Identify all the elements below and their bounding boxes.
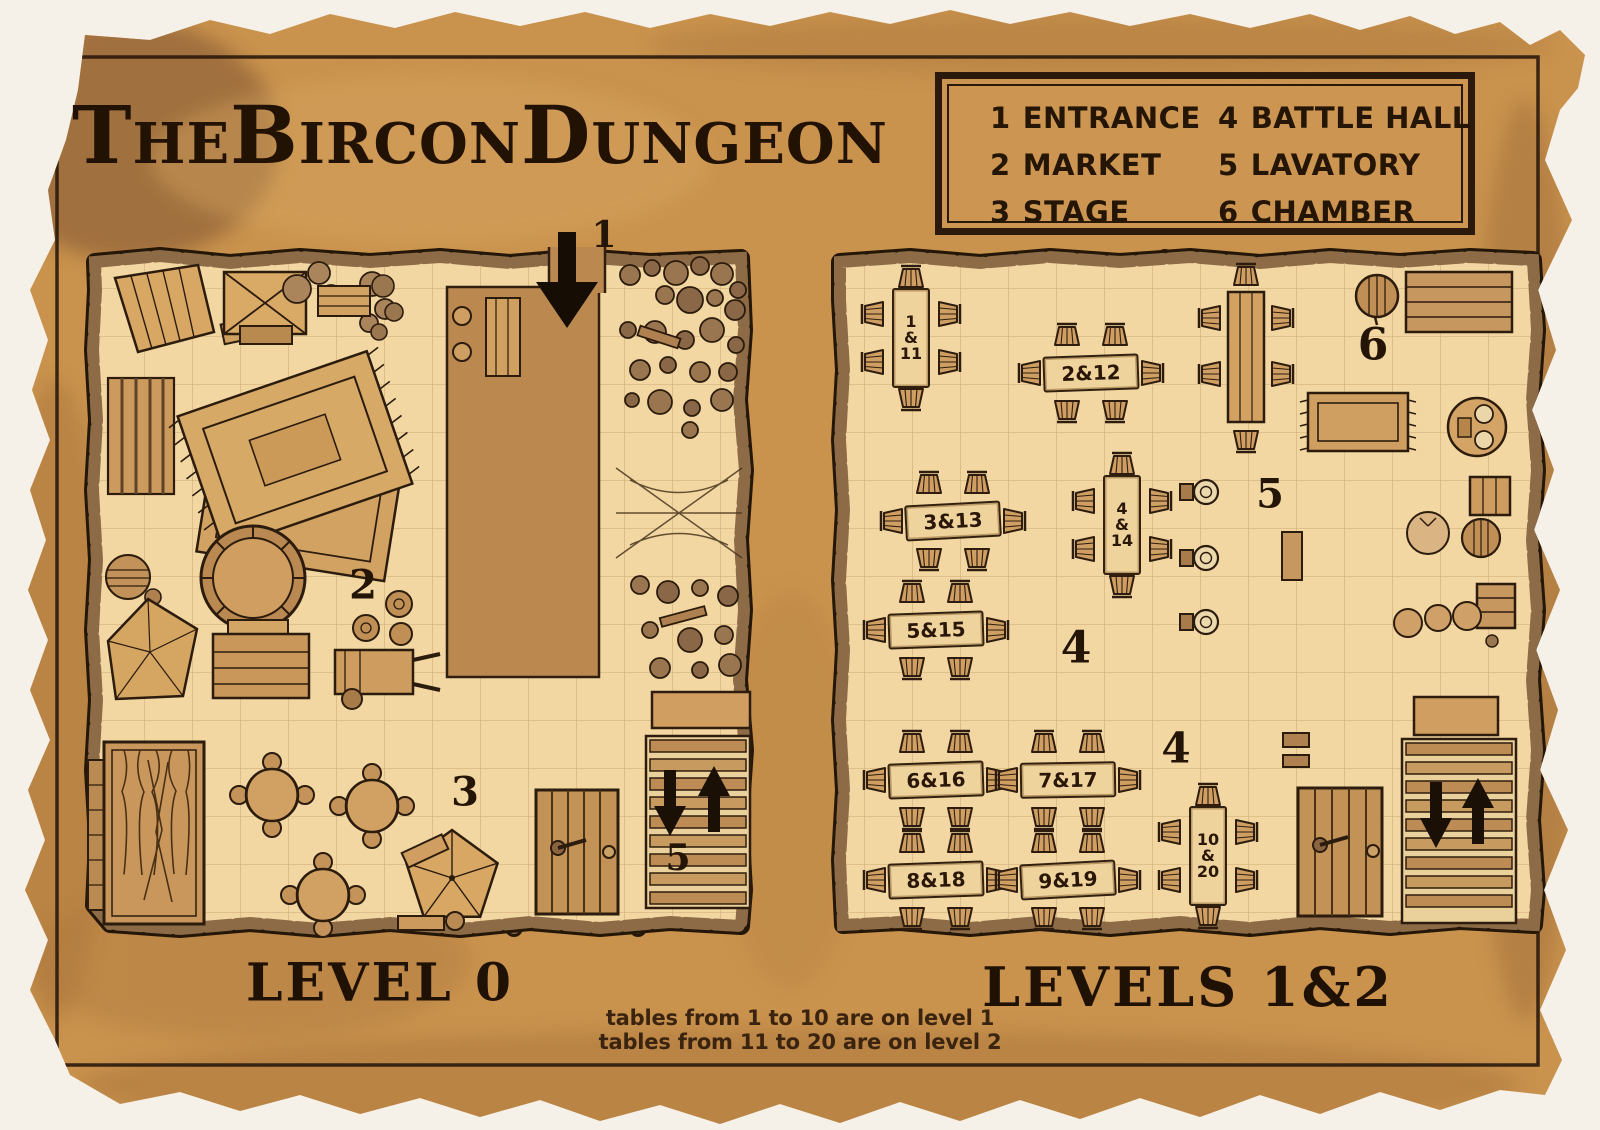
pot <box>446 912 464 930</box>
table-9-19: 9&19 <box>1019 860 1117 901</box>
table-8-18: 8&18 <box>887 860 984 899</box>
marker-market: 2 <box>349 562 377 609</box>
table-2-12: 2&12 <box>1042 353 1139 392</box>
table-5-15: 5&15 <box>887 610 984 649</box>
legend-item-stage: 3STAGE <box>990 195 1130 229</box>
market-bench <box>318 286 370 316</box>
stool <box>453 307 471 325</box>
table-4-14: 4 & 14 <box>1103 475 1141 575</box>
chamber-round-table <box>1448 398 1506 456</box>
bench-table <box>486 298 520 376</box>
lavatory-bench <box>1282 532 1302 580</box>
stairs-levels12 <box>1402 697 1516 923</box>
legend-item-lavatory: 5LAVATORY <box>1218 148 1421 182</box>
table-level-notes: tables from 1 to 10 are on level 1 table… <box>599 1006 1002 1054</box>
legend: 1ENTRANCE 2MARKET 3STAGE 4BATTLE HALL 5L… <box>935 72 1475 235</box>
marker-entrance: 1 <box>591 214 616 256</box>
marker-lavatory: 5 <box>1256 471 1284 518</box>
marker-stairs-level0: 5 <box>665 837 690 879</box>
note-line-2: tables from 11 to 20 are on level 2 <box>599 1030 1002 1054</box>
door-handle-icon <box>1367 845 1379 857</box>
note-line-1: tables from 1 to 10 are on level 1 <box>599 1006 1002 1030</box>
door-handle-icon <box>603 846 615 858</box>
stool <box>453 343 471 361</box>
table-1-11: 1 & 11 <box>892 288 930 388</box>
striped-rug <box>108 378 174 494</box>
wooden-door <box>536 790 618 914</box>
table-6-16: 6&16 <box>887 760 984 799</box>
level0-map <box>88 232 750 937</box>
stairs-level0 <box>646 692 750 908</box>
marker-chamber: 6 <box>1358 320 1389 371</box>
table-10-20: 10 & 20 <box>1189 806 1227 906</box>
legend-item-market: 2MARKET <box>990 148 1161 182</box>
levels12-caption: LEVELS 1&2 <box>982 955 1394 1019</box>
dungeon-map-sheet: TheBirconDungeon 1ENTRANCE 2MARKET 3STAG… <box>0 0 1600 1130</box>
chamber-rug <box>1300 393 1416 451</box>
page-title: TheBirconDungeon <box>72 88 888 182</box>
stage <box>88 742 204 924</box>
crate <box>398 916 444 930</box>
chamber-bed <box>1406 272 1512 332</box>
legend-item-battle-hall: 4BATTLE HALL <box>1218 101 1471 135</box>
marker-battle-hall-lower: 4 <box>1161 724 1190 773</box>
table-7-17: 7&17 <box>1020 761 1117 799</box>
legend-item-chamber: 6CHAMBER <box>1218 195 1415 229</box>
legend-item-entrance: 1ENTRANCE <box>990 101 1201 135</box>
pool <box>201 526 305 630</box>
marker-battle-hall-upper: 4 <box>1061 623 1092 674</box>
level0-caption: LEVEL 0 <box>246 953 514 1014</box>
marker-stage: 3 <box>451 769 479 816</box>
table-3-13: 3&13 <box>904 501 1002 542</box>
